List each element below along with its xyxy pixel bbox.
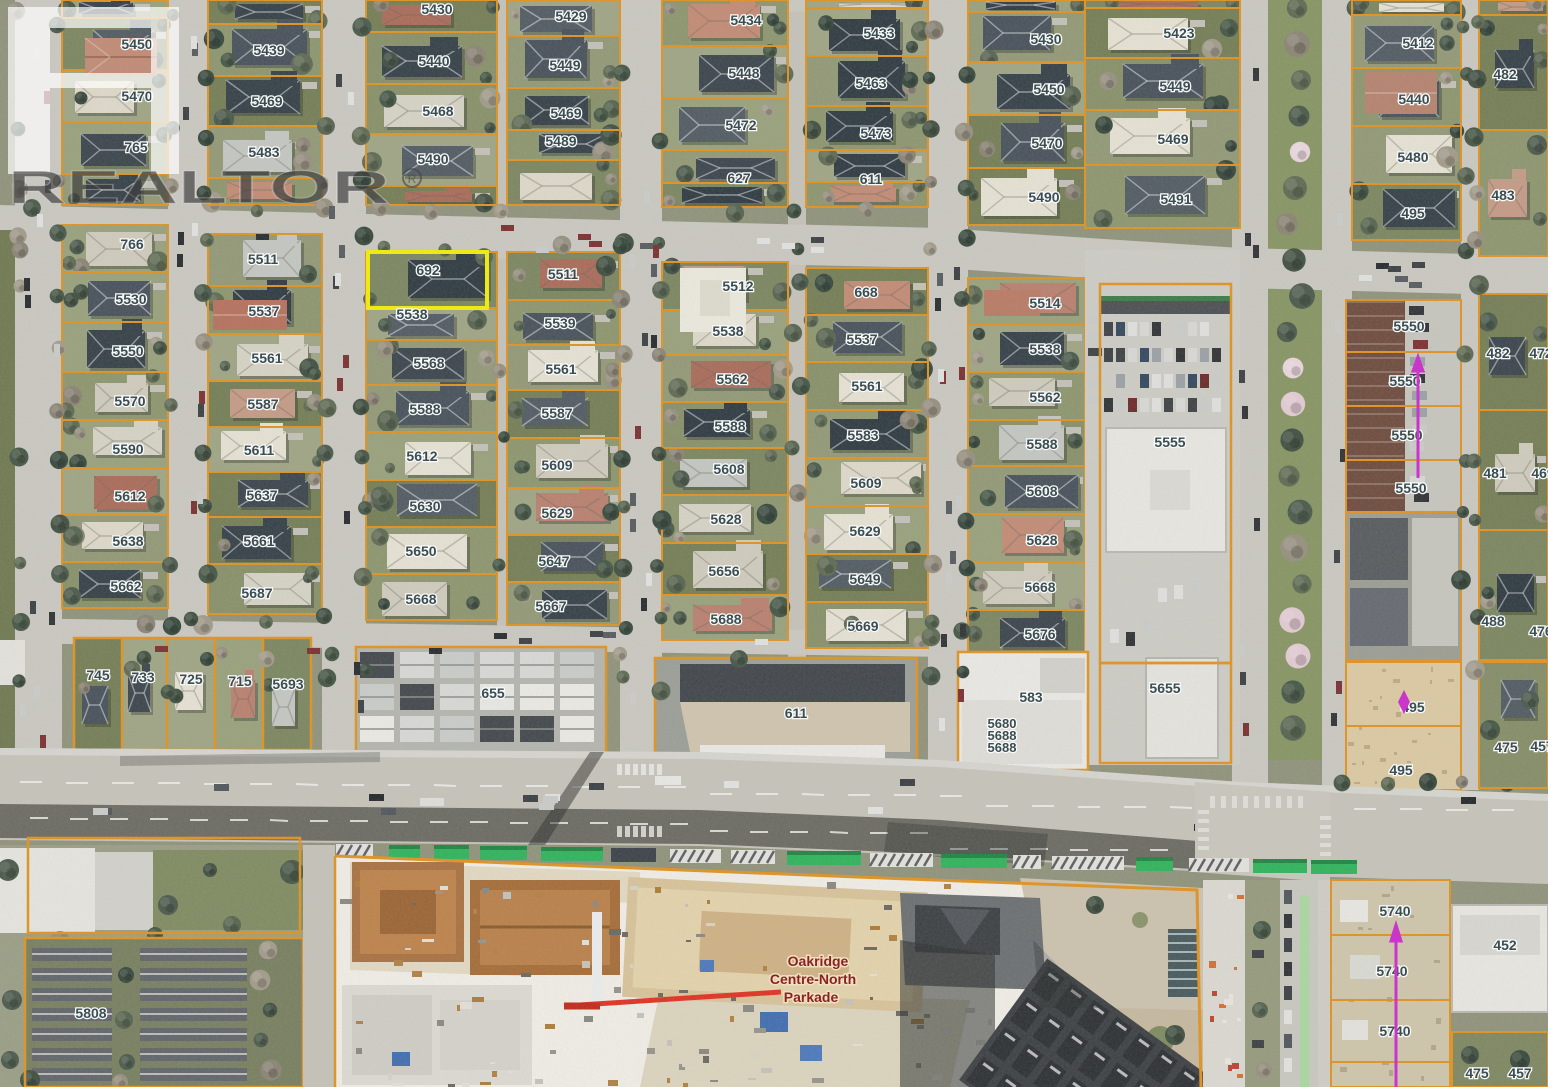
svg-text:REALTOR: REALTOR: [8, 161, 390, 213]
svg-text:R: R: [408, 172, 417, 186]
